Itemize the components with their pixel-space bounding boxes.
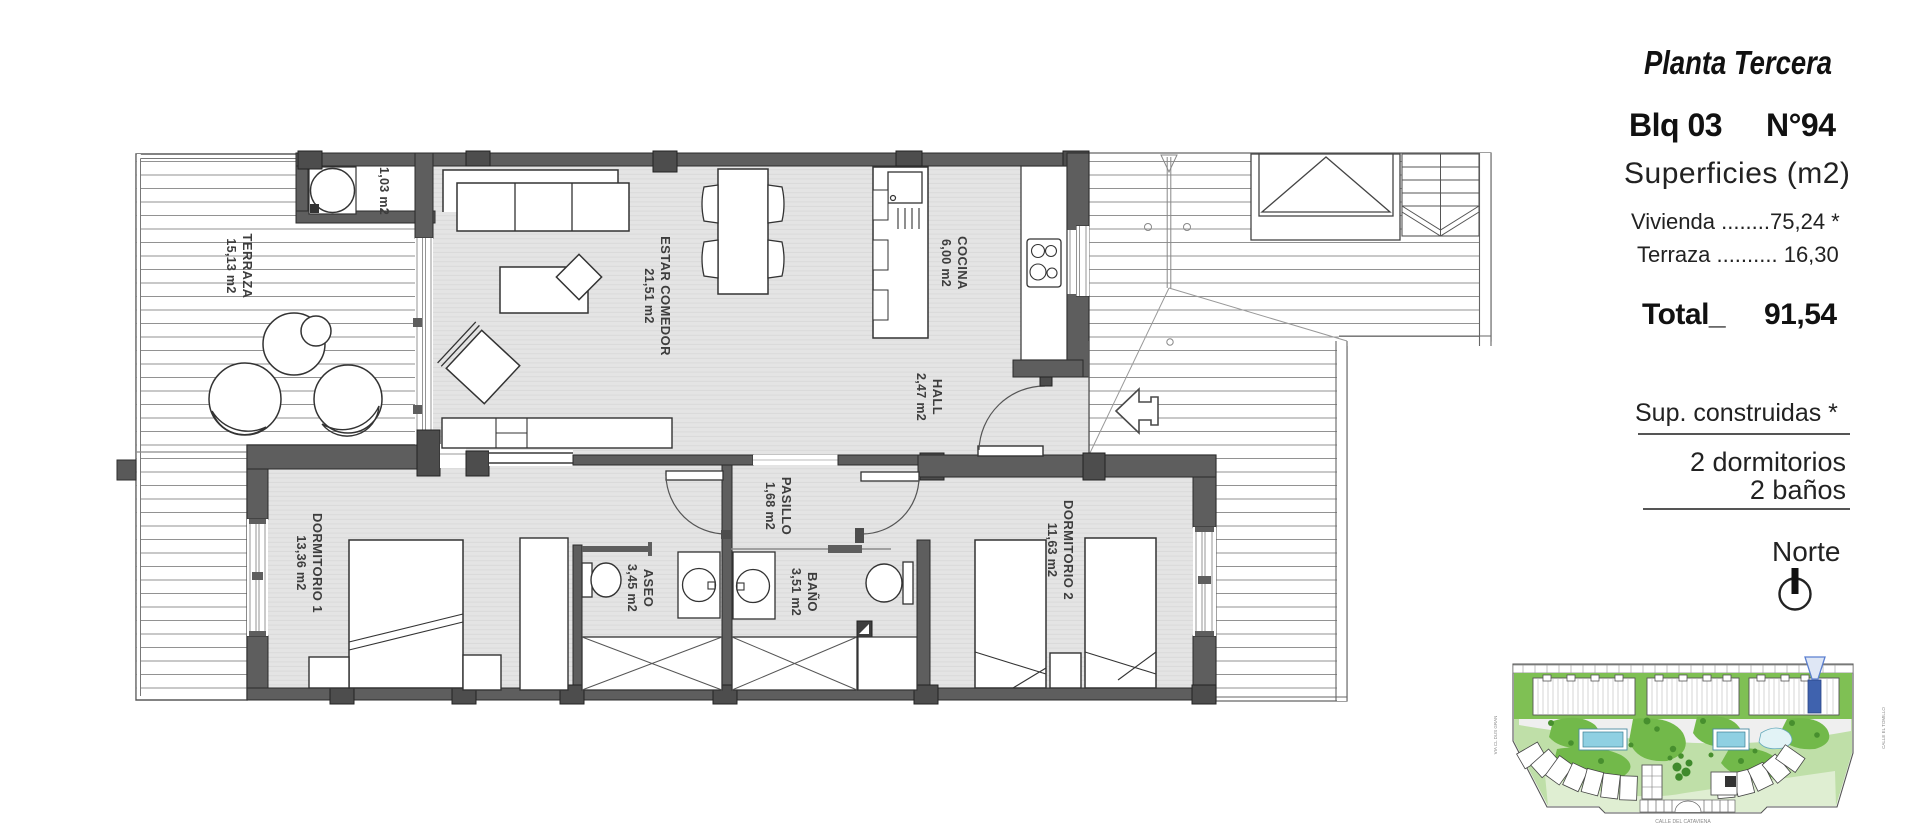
svg-text:CALLE DEL CATAVIENA: CALLE DEL CATAVIENA bbox=[1655, 819, 1711, 825]
svg-text:Vivienda ........75,24 *: Vivienda ........75,24 * bbox=[1631, 209, 1840, 234]
svg-text:Sup. construidas *: Sup. construidas * bbox=[1635, 399, 1838, 427]
svg-text:VIA CL DUS GRAN: VIA CL DUS GRAN bbox=[1493, 716, 1498, 755]
svg-text:1,03 m2: 1,03 m2 bbox=[377, 167, 391, 215]
svg-text:Superficies (m2): Superficies (m2) bbox=[1624, 157, 1850, 190]
svg-text:2 baños: 2 baños bbox=[1750, 475, 1846, 505]
svg-text:Total_: Total_ bbox=[1642, 298, 1726, 331]
svg-text:N°94: N°94 bbox=[1766, 107, 1836, 143]
svg-text:Planta Tercera: Planta Tercera bbox=[1644, 44, 1832, 81]
svg-text:CALLE EL TOMILLO: CALLE EL TOMILLO bbox=[1881, 707, 1886, 749]
svg-text:2 dormitorios: 2 dormitorios bbox=[1690, 447, 1846, 477]
svg-text:Norte: Norte bbox=[1772, 536, 1840, 567]
svg-text:Terraza .......... 16,30: Terraza .......... 16,30 bbox=[1637, 242, 1839, 267]
svg-text:Blq 03: Blq 03 bbox=[1629, 107, 1722, 143]
svg-text:91,54: 91,54 bbox=[1764, 298, 1837, 331]
